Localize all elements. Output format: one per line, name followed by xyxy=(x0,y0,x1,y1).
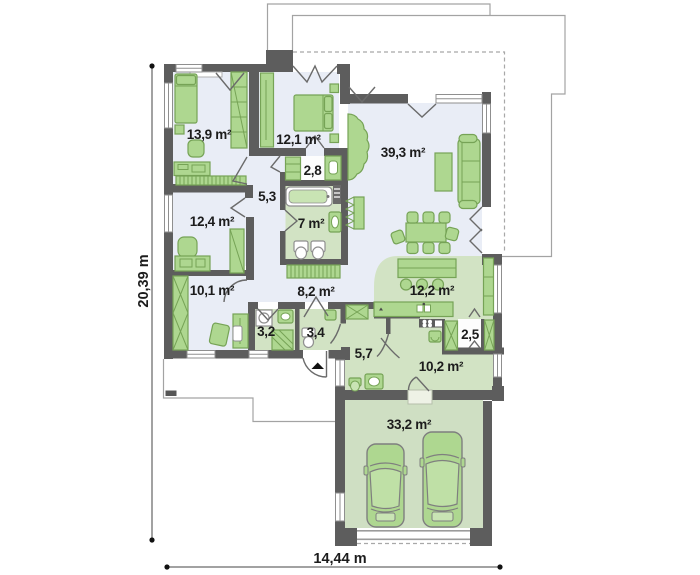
svg-text:39,3 m²: 39,3 m² xyxy=(381,145,426,160)
svg-text:8,2 m²: 8,2 m² xyxy=(297,284,335,299)
svg-text:12,1 m²: 12,1 m² xyxy=(276,132,321,147)
svg-text:10,2 m²: 10,2 m² xyxy=(419,359,464,374)
svg-text:14,44 m: 14,44 m xyxy=(313,551,366,567)
svg-text:7 m²: 7 m² xyxy=(298,216,325,231)
svg-text:2,5: 2,5 xyxy=(461,327,480,342)
svg-text:3,2: 3,2 xyxy=(257,324,275,339)
svg-text:12,2 m²: 12,2 m² xyxy=(410,283,455,298)
svg-text:5,3: 5,3 xyxy=(258,189,277,204)
svg-text:2,8: 2,8 xyxy=(304,163,323,178)
svg-text:20,39 m: 20,39 m xyxy=(136,254,152,307)
svg-text:3,4: 3,4 xyxy=(307,325,326,340)
svg-text:33,2 m²: 33,2 m² xyxy=(387,417,432,432)
svg-text:10,1 m²: 10,1 m² xyxy=(190,283,235,298)
svg-text:5,7: 5,7 xyxy=(355,346,373,361)
svg-text:12,4 m²: 12,4 m² xyxy=(190,214,235,229)
svg-text:13,9 m²: 13,9 m² xyxy=(187,127,232,142)
